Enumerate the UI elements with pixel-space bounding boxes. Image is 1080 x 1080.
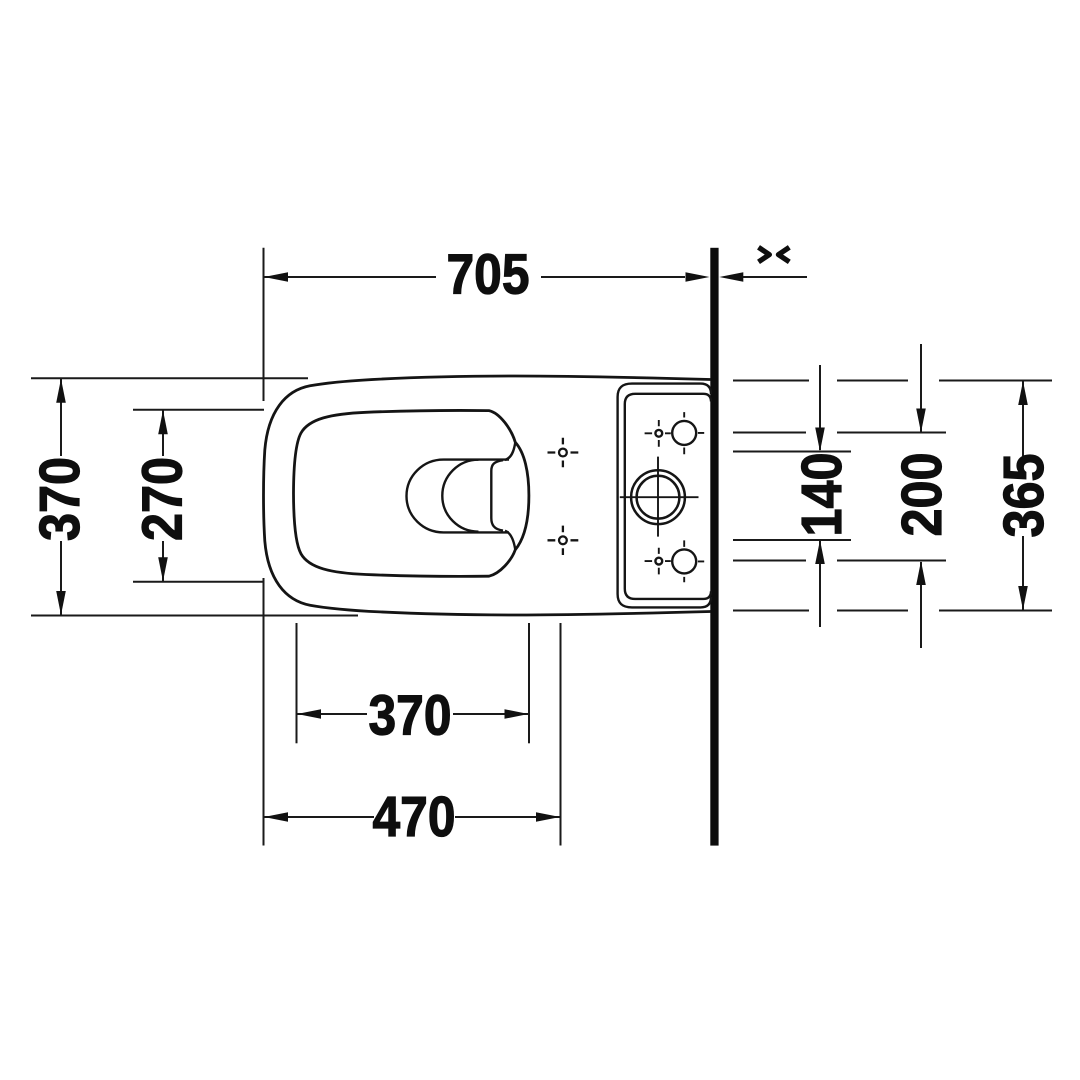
svg-text:200: 200 [890, 453, 954, 537]
svg-text:370: 370 [28, 457, 92, 541]
svg-text:705: 705 [447, 243, 530, 307]
svg-text:370: 370 [369, 684, 452, 748]
svg-text:365: 365 [992, 454, 1056, 538]
svg-text:470: 470 [373, 785, 456, 849]
svg-text:270: 270 [131, 457, 195, 541]
svg-text:140: 140 [790, 453, 854, 537]
